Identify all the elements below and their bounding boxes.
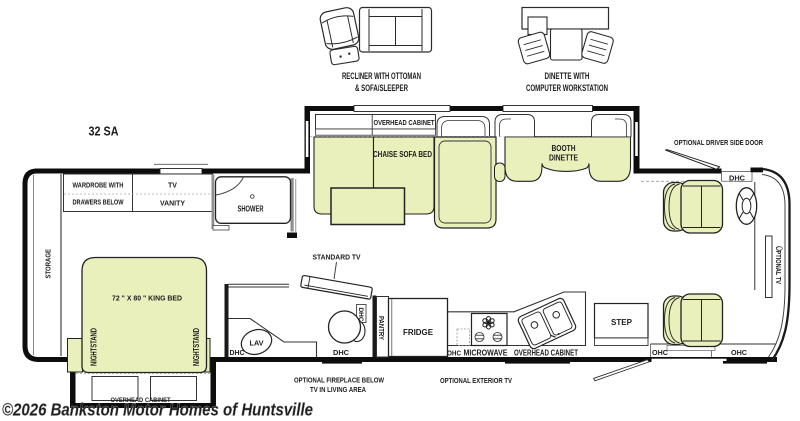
- svg-text:VANITY: VANITY: [160, 199, 185, 208]
- svg-text:DINETTE: DINETTE: [549, 154, 578, 163]
- svg-text:MICROWAVE: MICROWAVE: [464, 348, 508, 357]
- svg-text:PANTRY: PANTRY: [377, 316, 386, 340]
- svg-text:STORAGE: STORAGE: [44, 249, 53, 279]
- svg-text:OPTIONAL TV: OPTIONAL TV: [774, 246, 781, 284]
- svg-text:TV: TV: [168, 181, 177, 190]
- svg-text:32 SA: 32 SA: [89, 125, 119, 139]
- svg-text:OHC: OHC: [652, 348, 668, 357]
- svg-text:CHAISE SOFA BED: CHAISE SOFA BED: [373, 150, 432, 159]
- svg-text:TV IN LIVING AREA: TV IN LIVING AREA: [310, 385, 366, 394]
- svg-text:OVERHEAD CABINET: OVERHEAD CABINET: [374, 118, 435, 127]
- svg-text:OPTIONAL DRIVER SIDE DOOR: OPTIONAL DRIVER SIDE DOOR: [674, 138, 763, 147]
- svg-text:RECLINER WITH OTTOMAN: RECLINER WITH OTTOMAN: [342, 71, 421, 81]
- svg-text:FRIDGE: FRIDGE: [403, 328, 433, 337]
- svg-text:LAV: LAV: [250, 341, 264, 348]
- svg-text:OPTIONAL EXTERIOR TV: OPTIONAL EXTERIOR TV: [440, 376, 513, 385]
- svg-text:STEP: STEP: [611, 318, 633, 327]
- svg-text:SHOWER: SHOWER: [238, 205, 264, 214]
- svg-text:72 " X 80 " KING BED: 72 " X 80 " KING BED: [112, 294, 183, 303]
- svg-text:OVERHEAD CABINET: OVERHEAD CABINET: [514, 348, 578, 357]
- svg-text:DHC: DHC: [230, 348, 245, 357]
- svg-text:NIGHTSTAND: NIGHTSTAND: [192, 328, 201, 366]
- svg-text:DHC: DHC: [333, 348, 349, 357]
- svg-text:OHC: OHC: [447, 348, 461, 357]
- svg-text:DINETTE WITH: DINETTE WITH: [545, 71, 590, 81]
- svg-text:& SOFA/SLEEPER: & SOFA/SLEEPER: [355, 83, 408, 93]
- svg-text:COMPUTER WORKSTATION: COMPUTER WORKSTATION: [526, 83, 608, 93]
- svg-text:OHC: OHC: [731, 348, 747, 357]
- svg-text:NIGHTSTAND: NIGHTSTAND: [90, 328, 99, 366]
- svg-text:STANDARD TV: STANDARD TV: [313, 253, 362, 262]
- svg-text:©2026 Bankston Motor Homes of: ©2026 Bankston Motor Homes of Huntsville: [2, 400, 313, 420]
- svg-text:WARDROBE WITH: WARDROBE WITH: [73, 181, 124, 190]
- svg-text:OPTIONAL FIREPLACE BELOW: OPTIONAL FIREPLACE BELOW: [294, 376, 385, 385]
- svg-text:DRAWERS BELOW: DRAWERS BELOW: [73, 198, 124, 207]
- svg-text:BOOTH: BOOTH: [552, 144, 576, 153]
